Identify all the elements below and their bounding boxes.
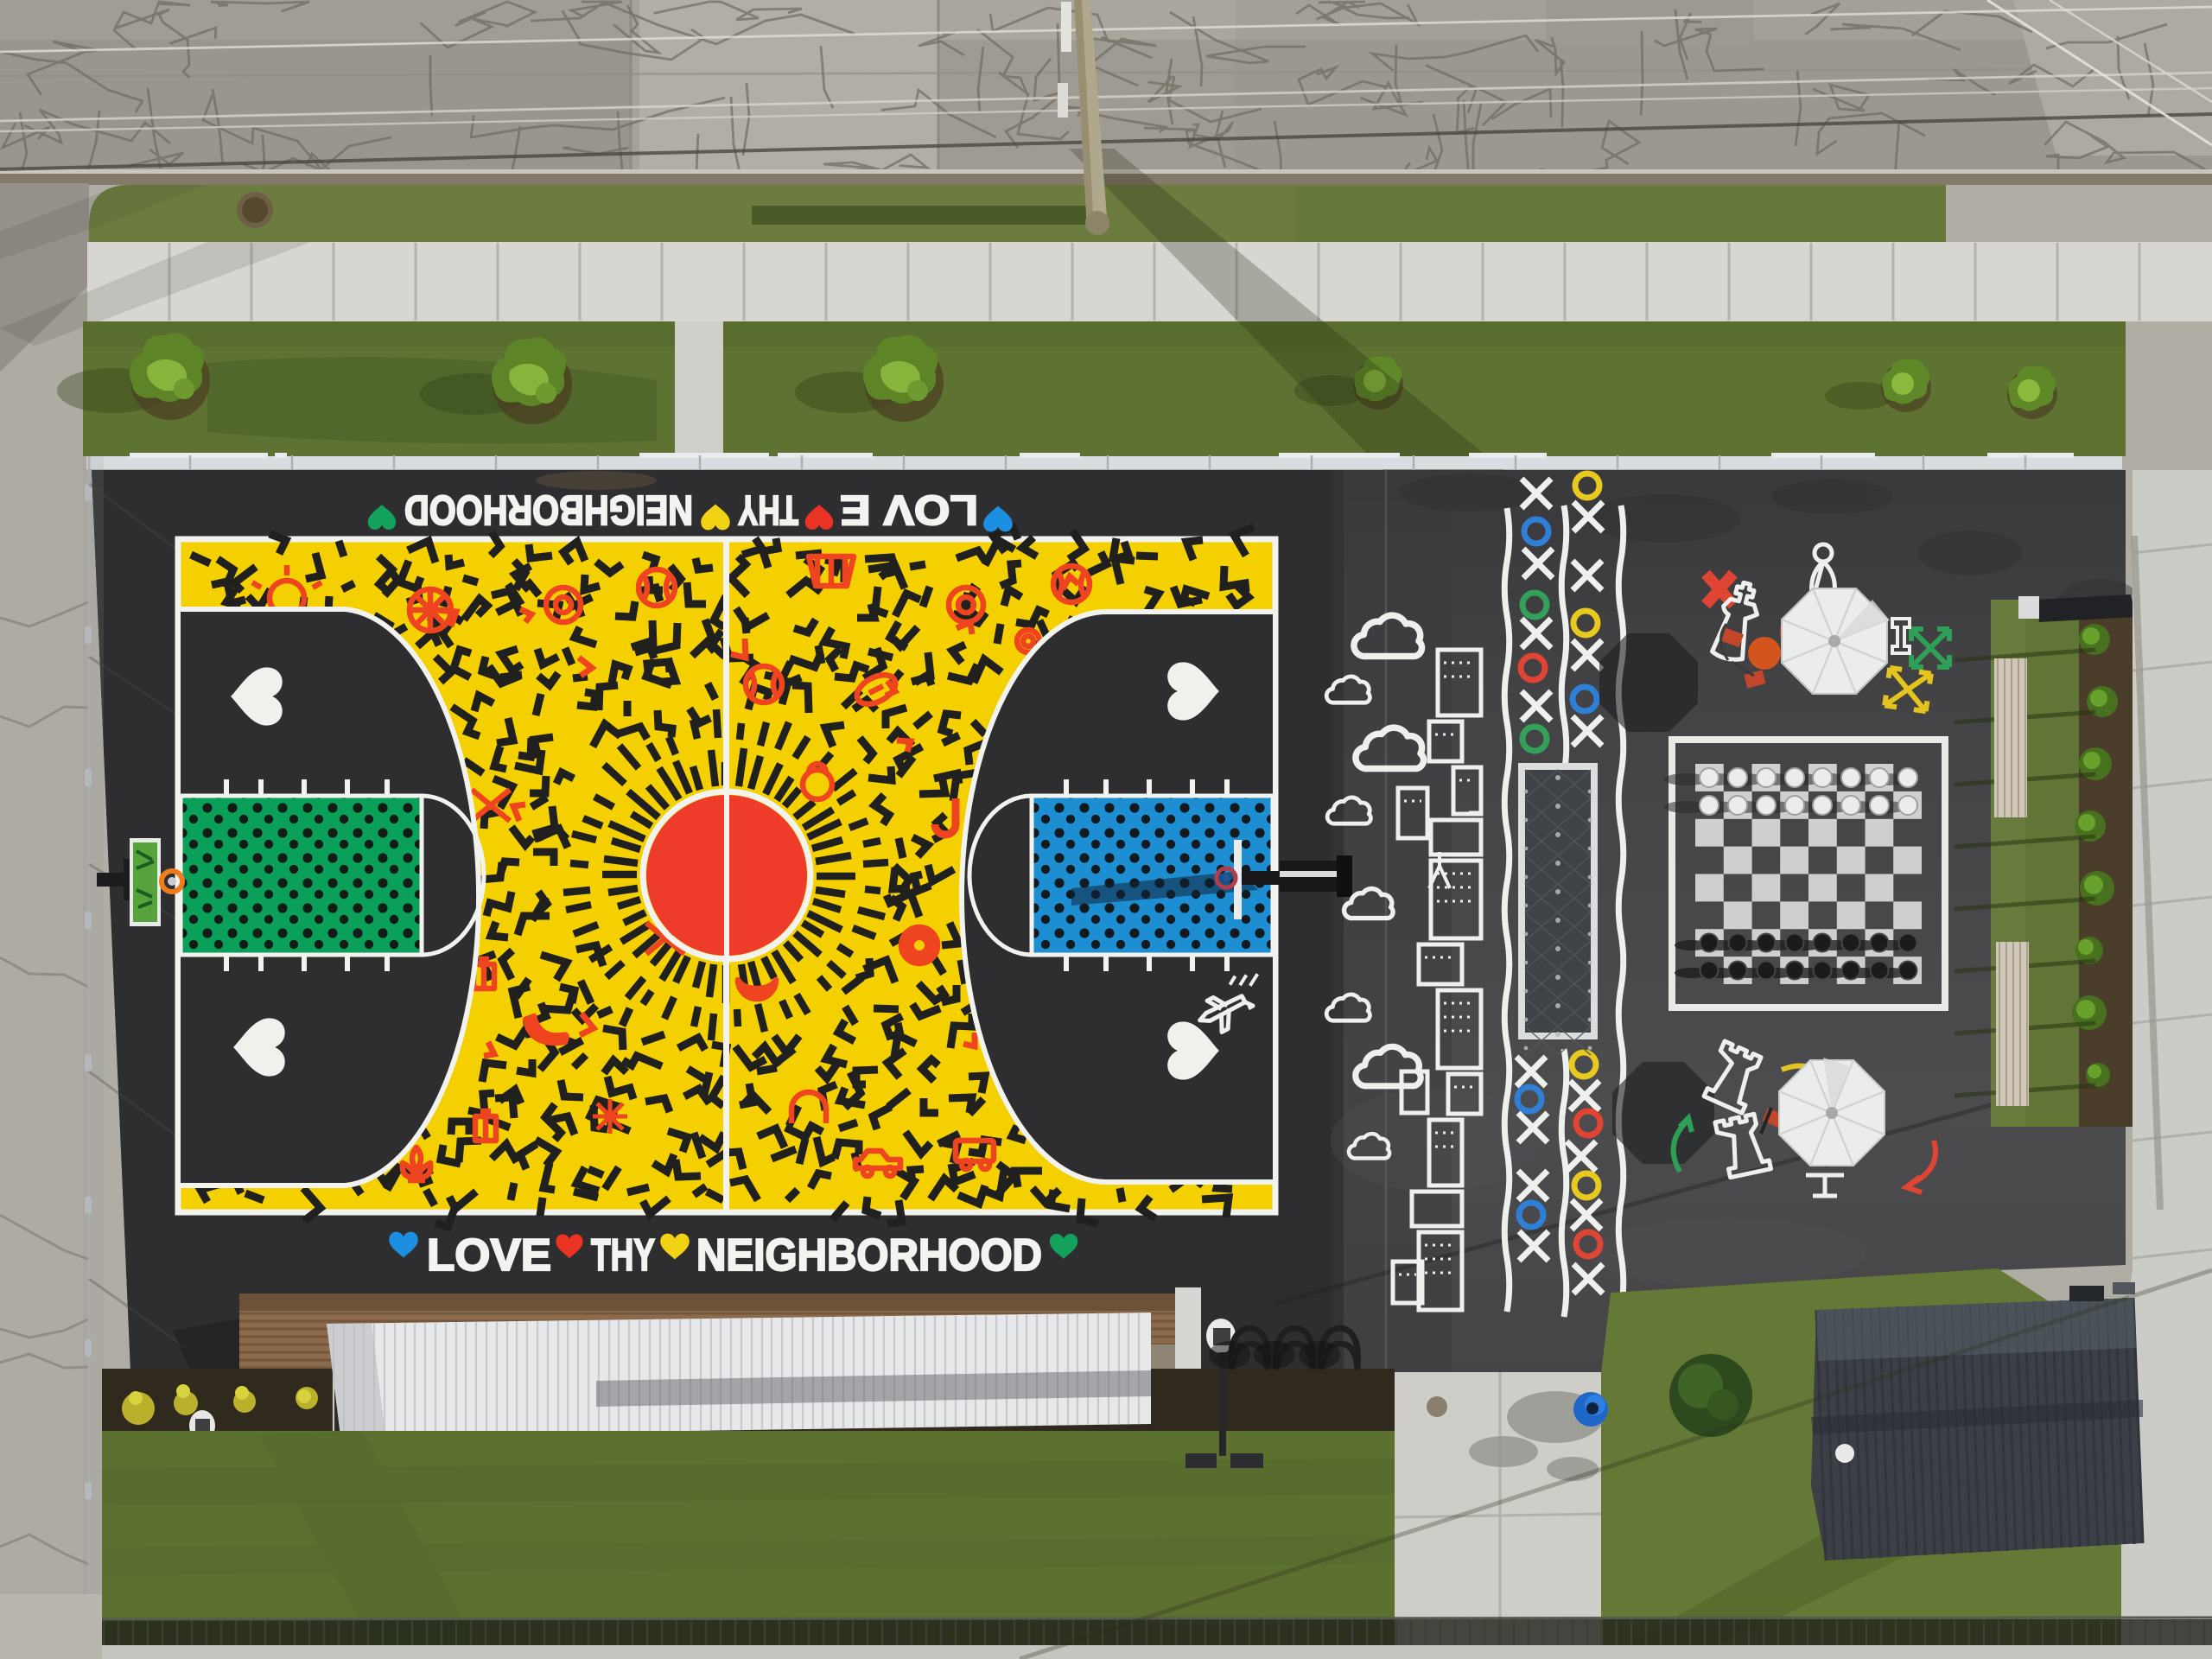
svg-text:NEIGHBORHOOD: NEIGHBORHOOD <box>696 1230 1042 1281</box>
svg-text:LOV E: LOV E <box>840 486 978 532</box>
svg-text:NEIGHBORHOOD: NEIGHBORHOOD <box>404 486 693 532</box>
svg-text:THY: THY <box>738 486 798 532</box>
svg-text:THY: THY <box>591 1230 655 1281</box>
svg-text:LOVE: LOVE <box>427 1230 551 1281</box>
